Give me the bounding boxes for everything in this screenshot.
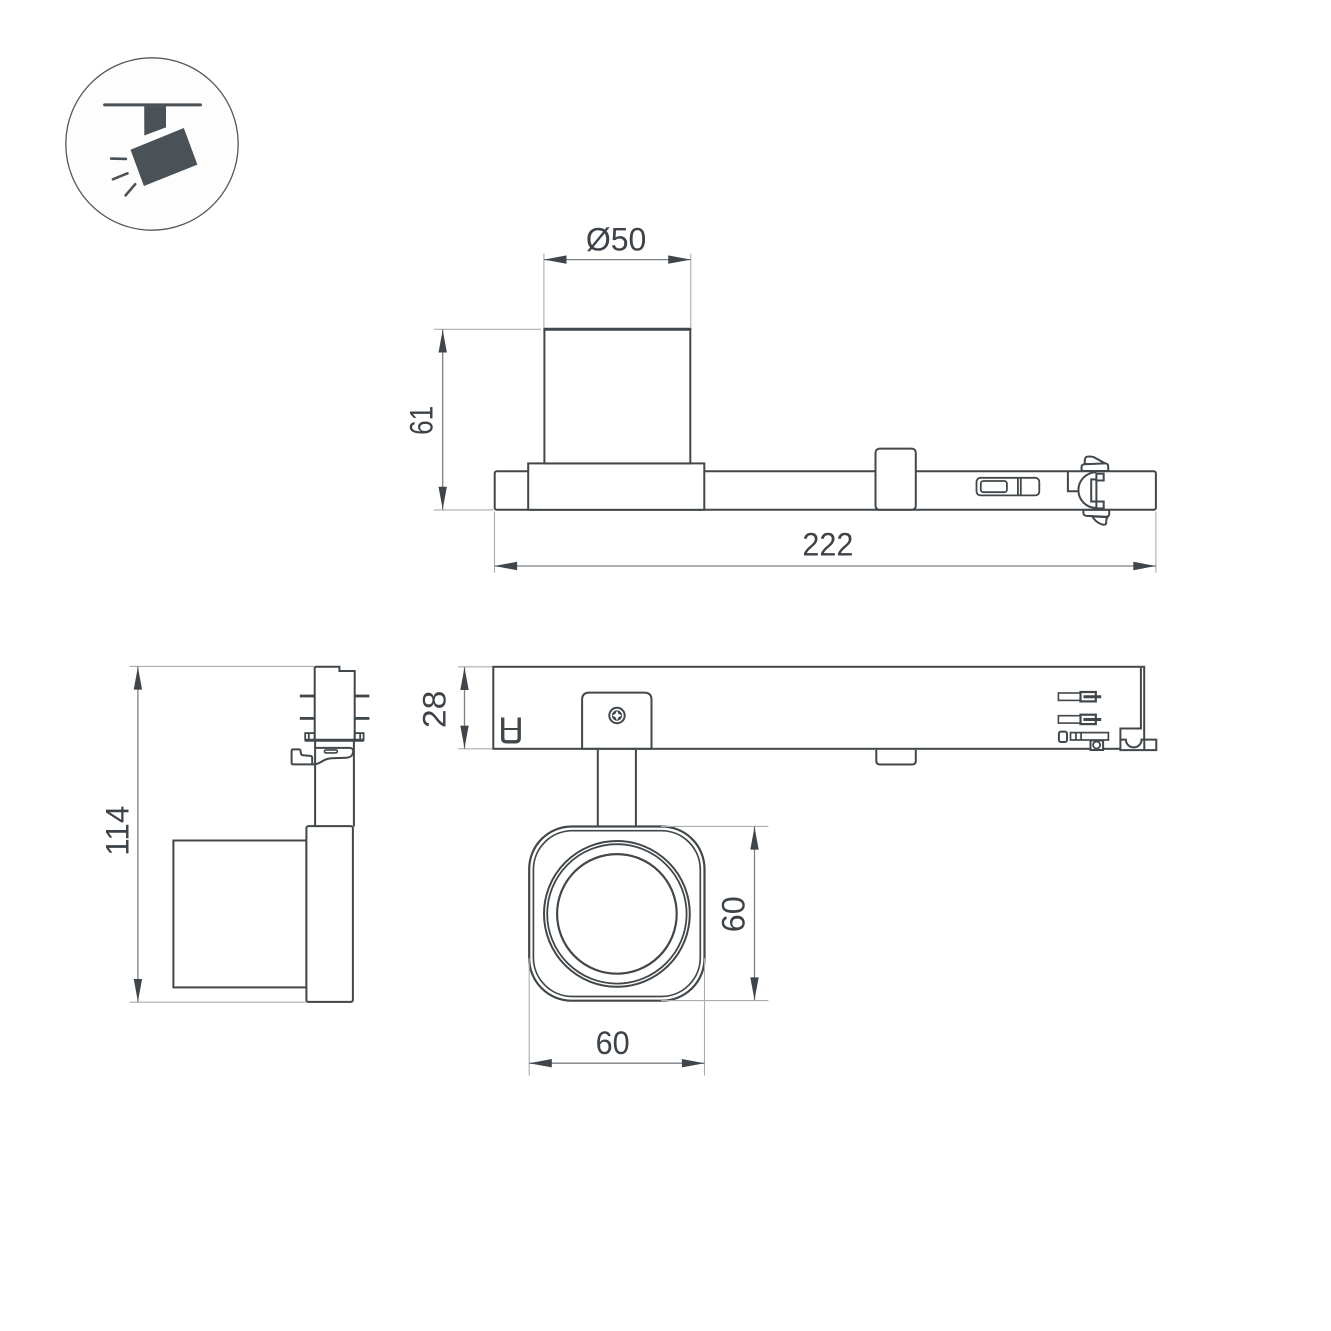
svg-text:60: 60 — [716, 896, 752, 932]
svg-text:114: 114 — [99, 806, 135, 856]
svg-text:Ø50: Ø50 — [586, 221, 647, 257]
svg-text:222: 222 — [802, 527, 853, 563]
svg-text:28: 28 — [416, 691, 452, 729]
svg-text:61: 61 — [403, 406, 439, 435]
svg-text:60: 60 — [596, 1025, 630, 1061]
